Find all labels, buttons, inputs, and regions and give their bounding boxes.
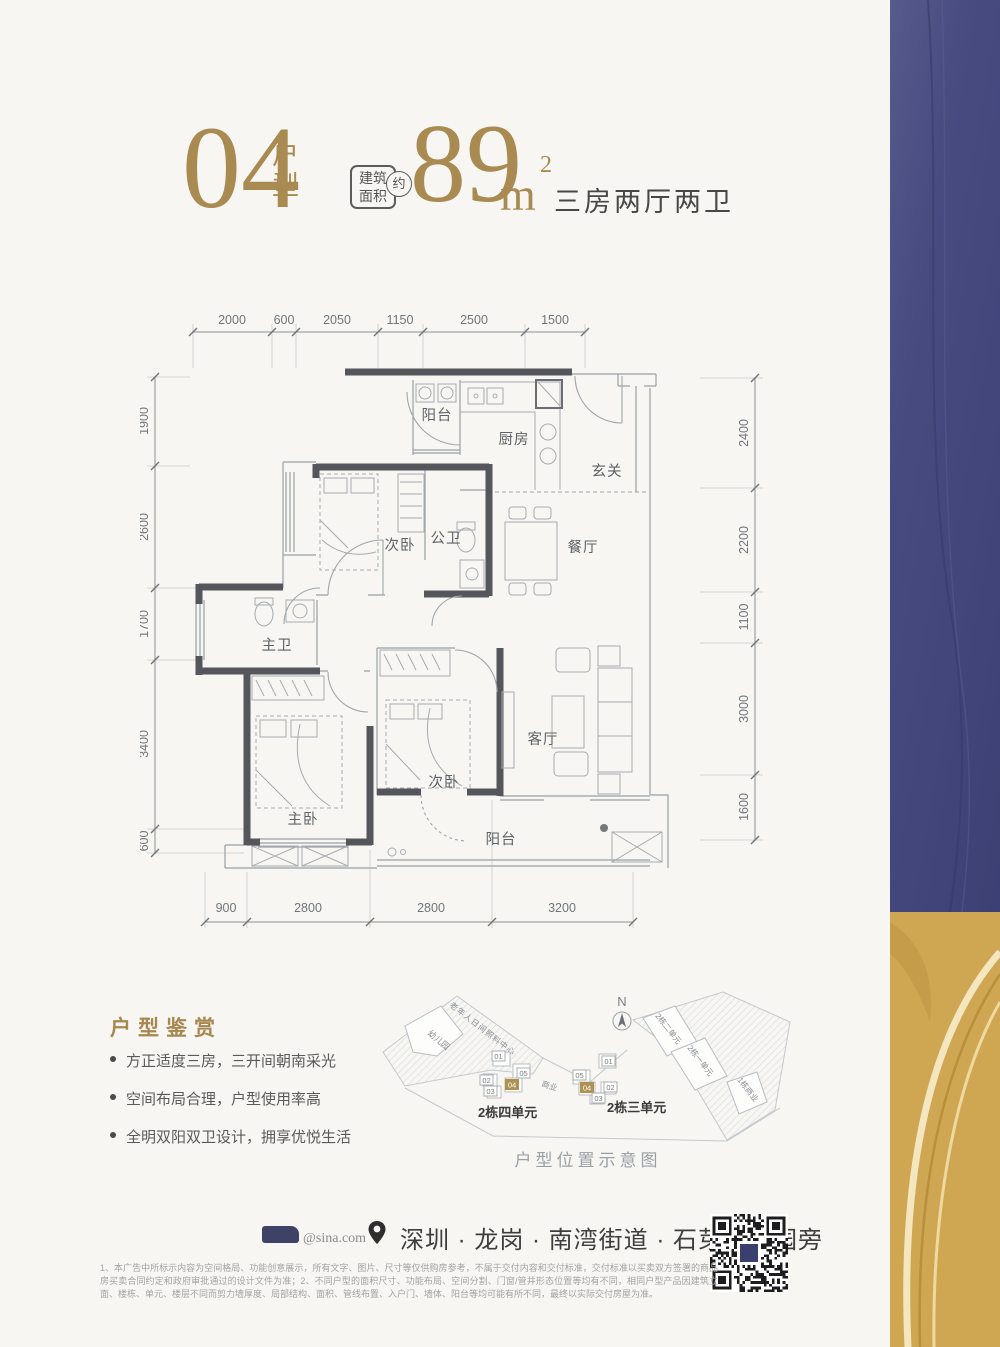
appreciation-item: 方正适度三房，三开间朝南采光 [110,1050,410,1071]
unit-chip: 01 [494,1052,502,1061]
dim-bottom-3: 2800 [417,901,445,915]
dim-right-2: 2200 [737,526,751,554]
dim-top-1: 2000 [218,313,246,327]
room-bedroom-master: 主卧 [288,811,319,828]
flyer-page: 04 户型 建筑 面积 约 89 m 2 三房两厅两卫 [0,0,1000,1347]
legal-disclaimer: 1、本广告中所标示内容为空间格局、功能创意展示，所有文字、图片、尺寸等仅供购房参… [100,1262,718,1301]
site-plan: N 老年人日间照料中心 幼儿园 01 05 02 03 04 [375,990,795,1175]
unit-chip: 02 [606,1083,614,1092]
unit-chip: 03 [594,1094,602,1103]
dim-left-4: 3400 [140,730,151,758]
cluster-right-units: 05 04 01 02 03 [573,1056,617,1103]
appreciation-text: 全明双阳双卫设计，拥享优悦生活 [126,1126,351,1147]
qr-center-logo [740,1244,758,1262]
dim-bottom-4: 3200 [548,901,576,915]
room-kitchen: 厨房 [499,431,530,448]
north-label: N [617,994,626,1009]
extension-lines [147,324,763,928]
room-bath-master: 主卫 [262,637,293,654]
bullet-dot-icon [110,1094,116,1100]
cluster-right-caption: 2栋三单元 [607,1100,666,1115]
dim-top-5: 2500 [460,313,488,327]
decor-band-gold [890,912,1000,1347]
doors [284,376,648,841]
unit-chip: 05 [519,1069,527,1078]
layout-description: 三房两厅两卫 [554,180,734,219]
unit-chip-highlight: 04 [508,1081,516,1090]
bullet-dot-icon [110,1056,116,1062]
room-living: 客厅 [528,731,559,748]
dimension-labels: 2000 600 2050 1150 2500 1500 1900 2600 1… [140,313,751,915]
decor-band-blue [890,0,1000,912]
sina-handle: @sina.com [303,1231,366,1247]
dim-left-2: 2600 [140,513,151,541]
room-balcony-bottom: 阳台 [486,831,517,848]
commerce-label: 商业 [540,1078,558,1092]
area-unit: m [500,168,536,221]
bullet-dot-icon [110,1132,116,1138]
unit-chip: 03 [486,1087,494,1096]
room-bedroom2-top: 次卧 [385,537,416,554]
approx-badge: 约 [386,171,412,197]
brand-logo [262,1226,299,1243]
room-foyer: 玄关 [592,463,623,480]
north-compass-icon: N [613,994,631,1030]
appreciation-title: 户型鉴赏 [110,1012,222,1042]
location-pin-icon [366,1219,388,1247]
appreciation-item: 全明双阳双卫设计，拥享优悦生活 [110,1126,410,1147]
dim-right-3: 1100 [737,604,751,631]
appreciation-item: 空间布局合理，户型使用率高 [110,1088,410,1109]
unit-chip: 02 [482,1076,490,1085]
floor-plan: 2000 600 2050 1150 2500 1500 1900 2600 1… [140,300,770,950]
gold-band-curves [890,912,1000,1347]
dim-left-5: 600 [140,831,151,852]
dim-bottom-2: 2800 [294,901,322,915]
dim-top-2: 600 [274,313,295,327]
room-bedroom2-bottom: 次卧 [429,774,460,791]
appreciation-text: 方正适度三房，三开间朝南采光 [126,1050,336,1071]
room-dining: 餐厅 [568,539,599,556]
dim-right-1: 2400 [737,419,751,447]
unit-chip: 01 [604,1057,612,1066]
qr-code [710,1214,788,1292]
area-superscript: 2 [540,152,552,179]
cluster-left-caption: 2栋四单元 [478,1105,537,1120]
dim-top-4: 1150 [387,313,414,327]
appreciation-list: 方正适度三房，三开间朝南采光 空间布局合理，户型使用率高 全明双阳双卫设计，拥享… [110,1050,410,1164]
dim-top-3: 2050 [323,313,351,327]
siteplan-caption: 户型位置示意图 [515,1151,662,1170]
dim-left-1: 1900 [140,407,151,435]
unit-chip: 05 [575,1071,583,1080]
room-balcony-top: 阳台 [422,407,453,424]
dim-bottom-1: 900 [216,901,237,915]
unit-chip-highlight: 04 [583,1084,591,1093]
dim-right-4: 3000 [737,695,751,723]
room-bath-public: 公卫 [431,531,462,547]
blue-band-curves [890,0,1000,912]
dim-left-3: 1700 [140,610,151,638]
dim-top-6: 1500 [541,313,569,327]
dim-right-5: 1600 [737,793,751,821]
unit-suffix: 户型 [272,140,302,202]
appreciation-text: 空间布局合理，户型使用率高 [126,1088,321,1109]
